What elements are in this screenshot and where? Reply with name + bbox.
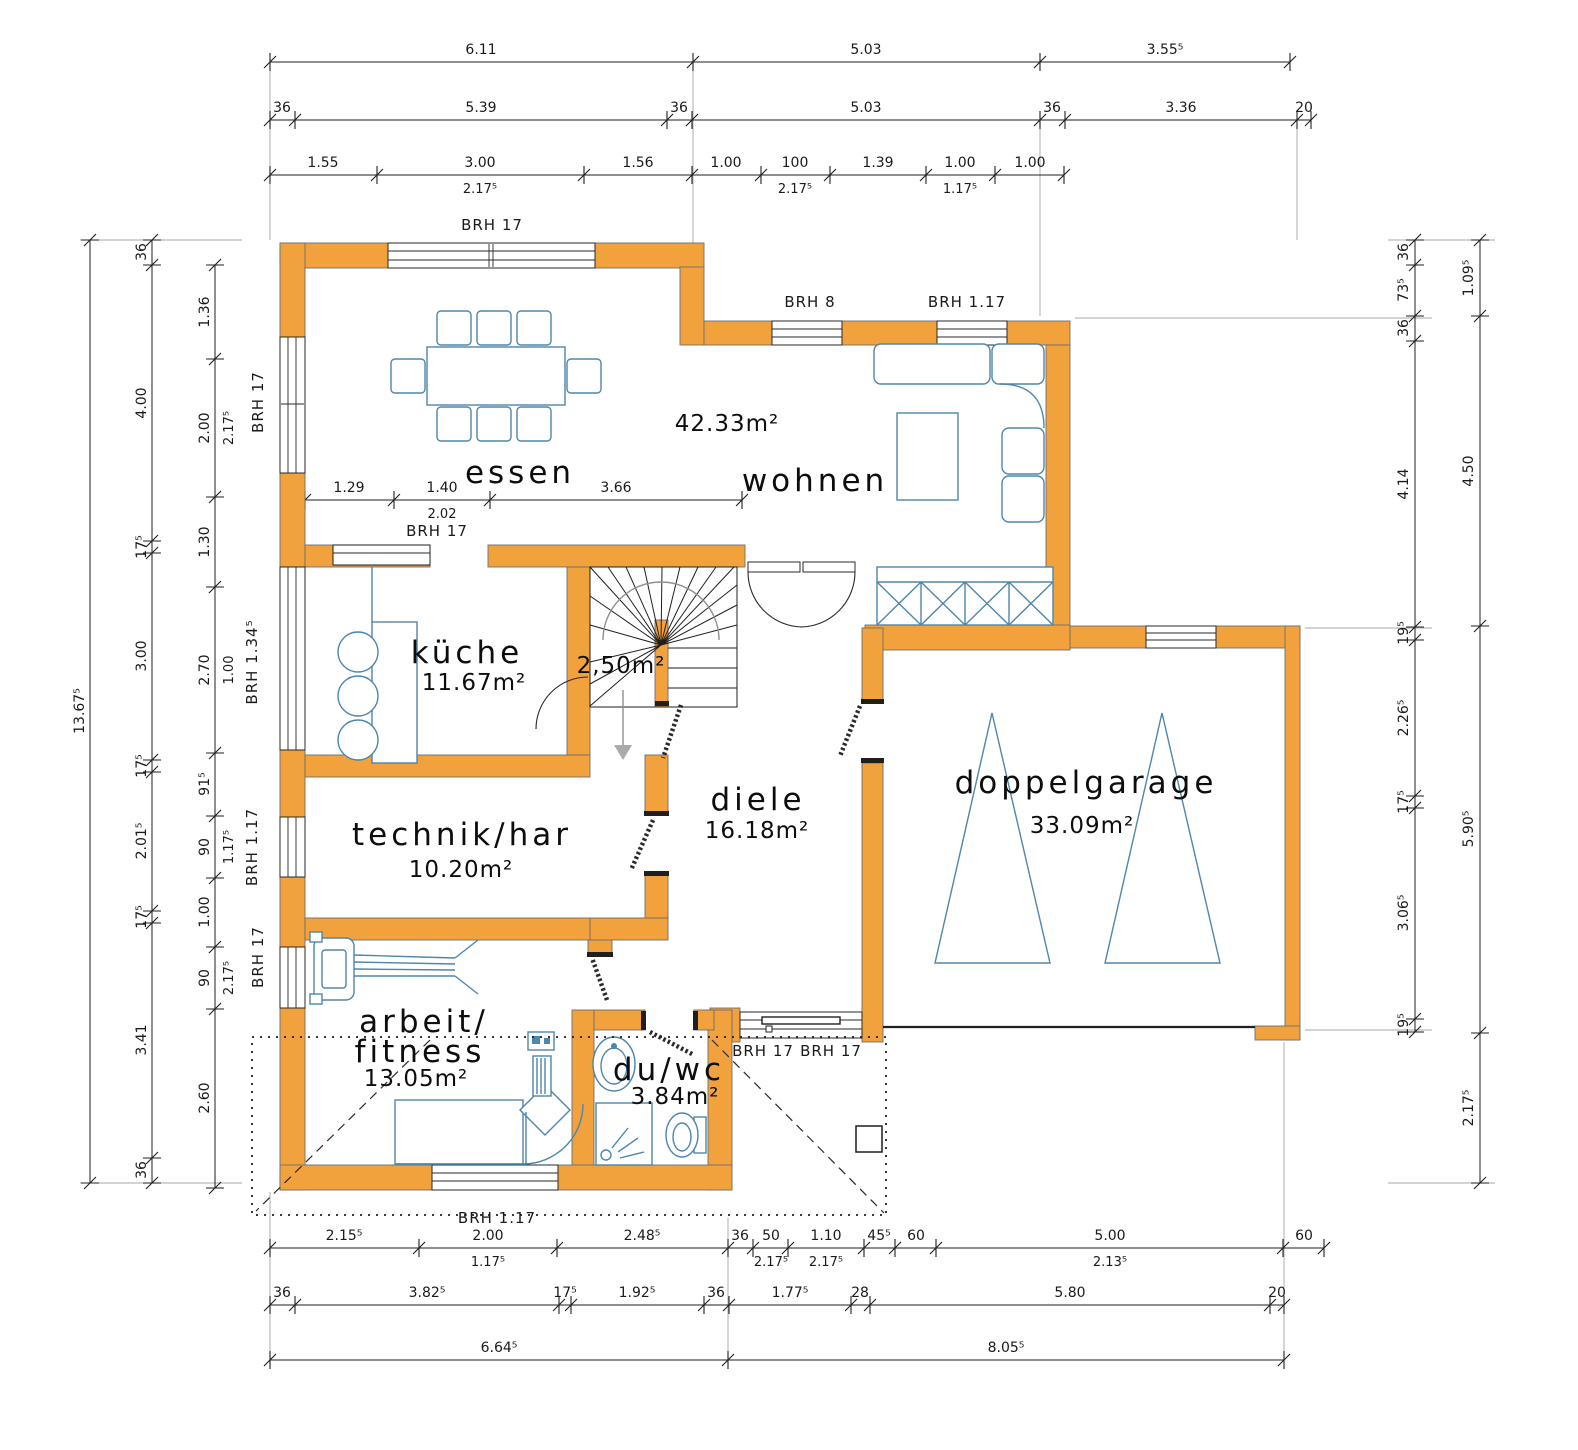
brh-label: BRH 17 (800, 1042, 862, 1060)
door-leaf-stairs (663, 705, 681, 758)
dim-label: 1.36 (197, 296, 213, 327)
dim-label: 1.55 (307, 155, 338, 171)
floor-plan-page: 6.11 5.03 3.55⁵ 36 5.39 36 5.03 36 3.36 … (0, 0, 1578, 1450)
brh-label: BRH 1.17 (928, 293, 1006, 311)
dim-label: 90 (197, 969, 213, 987)
dim-label: 2.60 (197, 1082, 213, 1113)
dim-label: 1.30 (197, 526, 213, 557)
brh-label: BRH 17 (249, 371, 267, 433)
room-area-technik: 10.20m² (409, 857, 513, 883)
window-left-2 (280, 567, 305, 750)
dim-label: 5.03 (850, 42, 881, 58)
window-wohnen-2 (937, 321, 1007, 345)
window-left-4 (280, 947, 305, 1008)
dim-label: 36 (273, 100, 291, 116)
window-left-3 (280, 817, 305, 877)
dim-label: 3.41 (134, 1024, 150, 1055)
dim-label: 6.11 (465, 42, 496, 58)
brh-label: BRH 1.17 (458, 1209, 536, 1227)
dim-label: 17⁵ (134, 905, 150, 928)
dim-sublabel: 1.00 (222, 656, 237, 685)
dim-label: 1.00 (944, 155, 975, 171)
brh-label: BRH 8 (784, 293, 835, 311)
dim-label: 36 (1396, 319, 1412, 337)
dining-set (391, 311, 601, 441)
dim-label: 36 (670, 100, 688, 116)
brh-label: BRH 1.17 (243, 808, 261, 886)
room-area-kueche: 11.67m² (422, 670, 526, 696)
dim-label: 1.77⁵ (772, 1285, 809, 1301)
dim-sublabel: 1.17⁵ (222, 830, 237, 864)
wall-kueche-technik (305, 755, 590, 777)
door-leaf-technik (631, 820, 653, 870)
wall-step (680, 267, 704, 345)
dim-sublabel: 2.02 (428, 507, 457, 522)
door-leaf-arbeit (592, 958, 607, 1000)
dim-label: 45⁵ (867, 1228, 890, 1244)
room-label-technik: technik/har (352, 817, 572, 853)
wall-diele-garage-1 (862, 628, 883, 703)
sideboard-x (877, 567, 1053, 625)
dim-sublabel: 2.17⁵ (778, 182, 812, 197)
wall-garage-corner (1255, 1026, 1300, 1040)
brh-label: BRH 1.34⁵ (243, 619, 261, 704)
shower (596, 1103, 652, 1165)
room-label-essen: essen (465, 455, 575, 491)
dim-label: 2.15⁵ (326, 1228, 363, 1244)
window-left-1 (280, 337, 305, 473)
double-door-wohnen (748, 562, 855, 627)
dim-label: 2.26⁵ (1396, 700, 1412, 737)
dim-label: 36 (707, 1285, 725, 1301)
dim-label: 20 (1295, 100, 1313, 116)
room-area-diele: 16.18m² (705, 818, 809, 844)
dim-label: 73⁵ (1396, 278, 1412, 301)
dim-label: 5.80 (1054, 1285, 1085, 1301)
dim-label: 1.39 (862, 155, 893, 171)
room-label-arbeit-2: fitness (355, 1034, 486, 1070)
dim-label: 2.00 (197, 412, 213, 443)
brh-label: BRH 17 (461, 216, 523, 234)
dim-label: 3.82⁵ (409, 1285, 446, 1301)
dim-label: 5.03 (850, 100, 881, 116)
dim-label: 20 (1268, 1285, 1286, 1301)
wall-technik-arbeit (305, 918, 590, 940)
door-jambs (587, 699, 884, 1030)
dim-label: 2.17⁵ (1461, 1090, 1477, 1127)
dim-label: 17⁵ (1396, 790, 1412, 813)
dim-label: 3.00 (464, 155, 495, 171)
dim-label: 36 (731, 1228, 749, 1244)
dim-label: 36 (273, 1285, 291, 1301)
room-area-wohnen: 42.33m² (675, 411, 779, 437)
room-area-arbeit: 13.05m² (364, 1066, 468, 1092)
coffee-table (897, 413, 958, 500)
wall-bottom-2 (558, 1165, 732, 1190)
door-leaf-garage (840, 706, 860, 756)
dim-label: 36 (134, 243, 150, 261)
dim-label: 28 (851, 1285, 869, 1301)
window-garage (1146, 626, 1216, 648)
room-label-kueche: küche (411, 635, 523, 671)
floor-plan-drawing: 6.11 5.03 3.55⁵ 36 5.39 36 5.03 36 3.36 … (0, 0, 1578, 1450)
dim-label: 36 (1043, 100, 1061, 116)
brh-label: BRH 17 (249, 926, 267, 988)
dim-label: 36 (134, 1161, 150, 1179)
wall-duwc-top-1 (594, 1010, 645, 1030)
dim-label: 1.09⁵ (1461, 260, 1477, 297)
wall-diele-west-1 (645, 755, 668, 815)
dim-label: 4.50 (1461, 455, 1477, 486)
toilet (666, 1113, 706, 1157)
dim-label: 2.01⁵ (134, 823, 150, 860)
dim-label: 100 (782, 155, 809, 171)
dim-label: 17⁵ (134, 535, 150, 558)
post-marker (856, 1126, 882, 1152)
dim-sublabel: 2.17⁵ (809, 1255, 843, 1270)
room-label-duwc: du/wc (613, 1052, 725, 1088)
dim-sublabel: 2.17⁵ (754, 1255, 788, 1270)
dim-label: 3.66 (600, 480, 631, 496)
dim-label: 4.14 (1396, 468, 1412, 499)
room-label-wohnen: wohnen (742, 463, 888, 499)
room-area-stairs: 2,50m² (577, 653, 666, 679)
dim-label: 13.67⁵ (72, 688, 88, 734)
sideboard-essen (333, 545, 430, 565)
window-wohnen-1 (772, 321, 842, 345)
dim-label: 6.64⁵ (481, 1340, 518, 1356)
window-essen-top (388, 243, 595, 268)
dim-label: 1.92⁵ (619, 1285, 656, 1301)
dim-sublabel: 2.17⁵ (222, 961, 237, 995)
dim-label: 17⁵ (553, 1285, 576, 1301)
wall-mid (488, 545, 745, 567)
wall-bottom-wohnen (865, 625, 1070, 650)
fitness-machine (310, 932, 478, 1004)
dim-label: 1.56 (622, 155, 653, 171)
dim-label: 2.48⁵ (624, 1228, 661, 1244)
kitchen-counter (338, 567, 417, 763)
dim-label: 1.40 (426, 480, 457, 496)
stair-direction-arrow (614, 745, 632, 760)
dim-label: 1.00 (710, 155, 741, 171)
dim-label: 50 (762, 1228, 780, 1244)
dim-label: 3.55⁵ (1147, 42, 1184, 58)
wall-top-wohnen (704, 321, 1070, 345)
dim-label: 1.10 (810, 1228, 841, 1244)
dim-label: 3.00 (134, 640, 150, 671)
wall-diele-west-2 (645, 875, 668, 918)
wall-technik-arbeit-2 (590, 918, 668, 940)
brh-label: BRH 17 (406, 522, 468, 540)
dim-label: 1.00 (197, 896, 213, 927)
dim-sublabel: 2.17⁵ (463, 182, 497, 197)
window-arbeit-bottom (432, 1165, 558, 1190)
dim-label: 36 (1396, 243, 1412, 261)
dim-label: 4.00 (134, 387, 150, 418)
dim-label: 19⁵ (1396, 621, 1412, 644)
dim-label: 60 (907, 1228, 925, 1244)
wall-diele-garage-2 (862, 763, 883, 1042)
wall-duwc-west (572, 1010, 594, 1167)
dim-label: 5.39 (465, 100, 496, 116)
dim-label: 91⁵ (197, 772, 213, 795)
dim-label: 1.29 (333, 480, 364, 496)
room-area-garage: 33.09m² (1030, 813, 1134, 839)
window-entry (740, 1012, 862, 1038)
brh-label: BRH 17 (732, 1042, 794, 1060)
wall-garage-right (1285, 626, 1300, 1040)
dim-sublabel: 2.17⁵ (222, 411, 237, 445)
dim-label: 90 (197, 838, 213, 856)
room-label-diele: diele (710, 782, 805, 818)
dim-label: 2.70 (197, 654, 213, 685)
dim-sublabel: 1.17⁵ (943, 182, 977, 197)
dim-label: 5.00 (1094, 1228, 1125, 1244)
dim-label: 3.36 (1165, 100, 1196, 116)
dim-sublabel: 2.13⁵ (1093, 1255, 1127, 1270)
dim-label: 3.06⁵ (1396, 895, 1412, 932)
dim-label: 1.00 (1014, 155, 1045, 171)
wall-bottom-1 (280, 1165, 432, 1190)
room-area-duwc: 3.84m² (631, 1084, 720, 1110)
dim-label: 17⁵ (134, 754, 150, 777)
room-label-garage: doppelgarage (955, 765, 1218, 801)
dim-label: 19⁵ (1396, 1013, 1412, 1036)
dim-label: 5.90⁵ (1461, 811, 1477, 848)
dim-label: 2.00 (472, 1228, 503, 1244)
dim-label: 8.05⁵ (988, 1340, 1025, 1356)
dim-sublabel: 1.17⁵ (471, 1255, 505, 1270)
dim-label: 60 (1295, 1228, 1313, 1244)
